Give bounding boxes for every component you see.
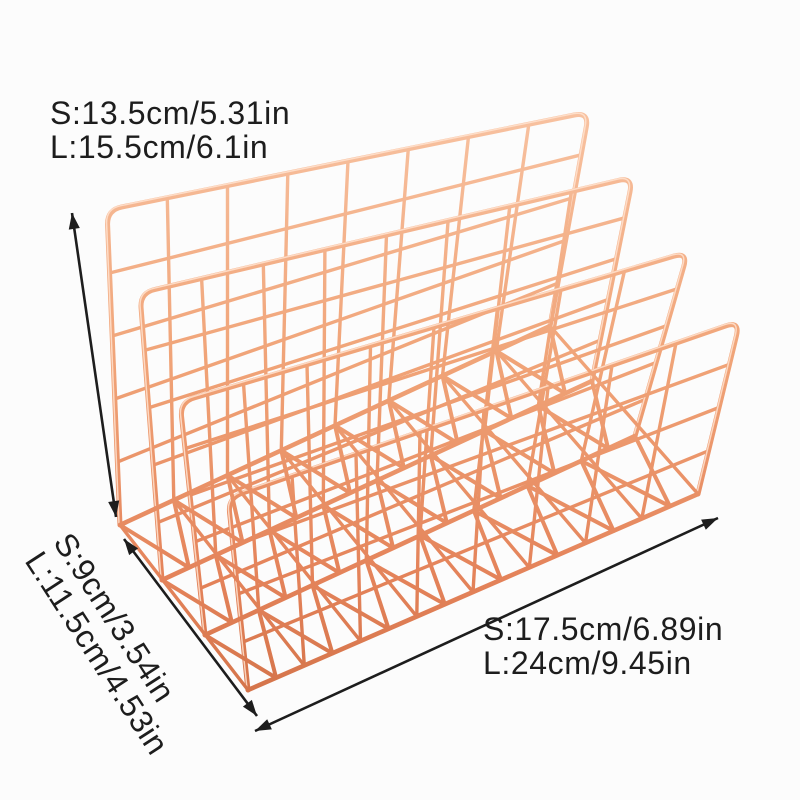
product-image: S:13.5cm/5.31in L:15.5cm/6.1in S:9cm/3.5…	[0, 0, 800, 800]
width-small-size: S:17.5cm/6.89in	[483, 612, 723, 646]
width-large-size: L:24cm/9.45in	[483, 646, 723, 680]
width-dimension-label: S:17.5cm/6.89in L:24cm/9.45in	[483, 612, 723, 680]
height-small-size: S:13.5cm/5.31in	[50, 96, 290, 130]
height-dimension-label: S:13.5cm/5.31in L:15.5cm/6.1in	[50, 96, 290, 164]
height-large-size: L:15.5cm/6.1in	[50, 130, 290, 164]
wire-organizer-drawing	[107, 113, 738, 690]
